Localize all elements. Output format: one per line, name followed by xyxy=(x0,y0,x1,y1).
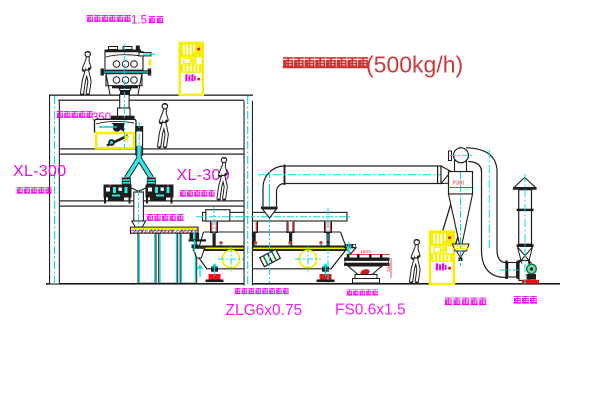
svg-text:FS0.6x1.5: FS0.6x1.5 xyxy=(335,302,406,319)
svg-text:1.5: 1.5 xyxy=(131,15,147,27)
svg-text:ZLG6x0.75: ZLG6x0.75 xyxy=(226,302,303,319)
svg-text:XL-300: XL-300 xyxy=(13,163,66,180)
svg-text:340: 340 xyxy=(386,264,392,272)
svg-text:(500kg/h): (500kg/h) xyxy=(366,52,463,78)
svg-text:P300: P300 xyxy=(453,181,465,187)
